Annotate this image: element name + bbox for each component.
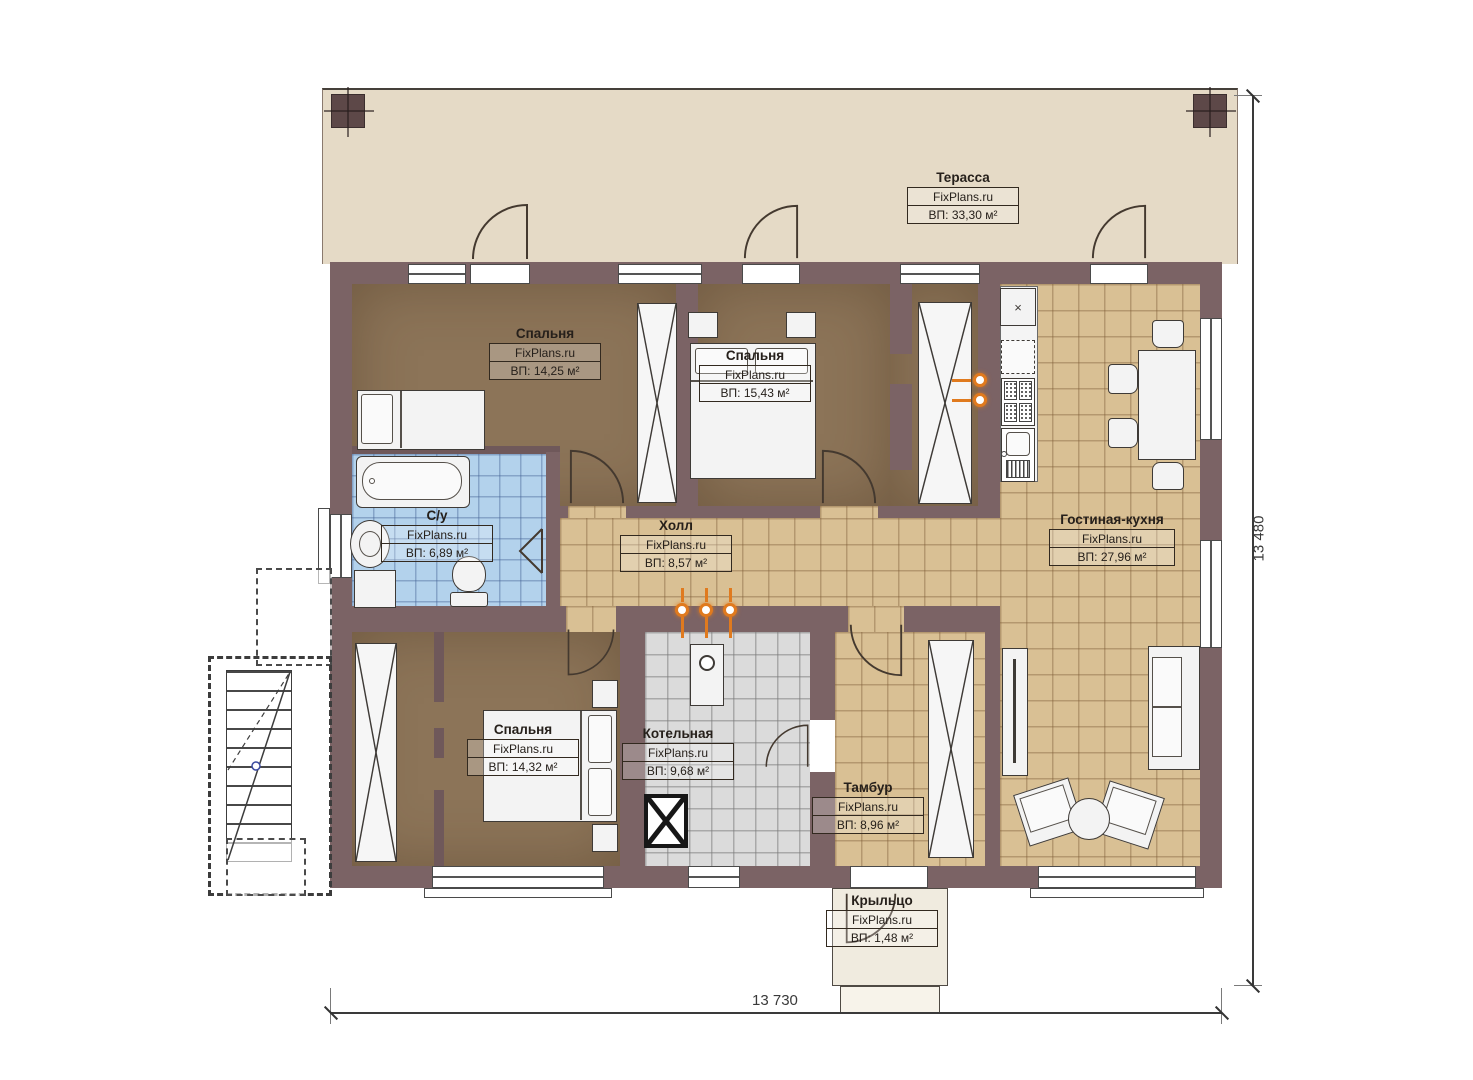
pillar [331,94,365,128]
watermark: FixPlans.ru [813,798,923,816]
entry-opening [850,866,928,888]
area-value: ВП: 33,30 м² [908,206,1018,223]
area-value: ВП: 27,96 м² [1050,548,1174,565]
nightstand-icon [786,312,816,338]
wall [434,728,444,758]
area-value: ВП: 15,43 м² [700,384,810,401]
room-label-terrace: Терасса FixPlans.ru ВП: 33,30 м² [908,170,1018,224]
wall [546,452,560,606]
wall [434,790,444,866]
room-name: Спальня [494,722,552,737]
door-arc [1090,202,1148,262]
gas-valve-icon [952,392,998,408]
door-opening [810,720,835,772]
door-arc [568,448,626,506]
area-value: ВП: 8,96 м² [813,816,923,833]
wall [626,506,820,518]
dimension-line [330,1012,1222,1014]
room-label-living-kitchen: Гостиная-кухня FixPlans.ru ВП: 27,96 м² [1050,512,1174,566]
room-name: Спальня [516,326,574,341]
wall [556,506,568,518]
room-label-boiler: Котельная FixPlans.ru ВП: 9,68 м² [623,726,733,780]
door-arc [470,202,530,262]
gas-valve-icon [952,372,998,388]
room-label-bedroom-3: Спальня FixPlans.ru ВП: 14,32 м² [468,722,578,776]
door-opening [742,264,800,284]
window [618,264,702,284]
door-arc [820,448,878,506]
watermark: FixPlans.ru [468,740,578,758]
door-arc [742,202,800,262]
floor-plan: × [0,0,1473,1080]
watermark: FixPlans.ru [700,366,810,384]
room-name: Холл [659,518,693,533]
porch-step [840,986,940,1014]
room-name: Гостиная-кухня [1060,512,1163,527]
wall [878,506,1000,518]
wall [890,284,912,354]
wardrobe-icon [355,643,397,862]
dimension-line [1234,985,1262,986]
wall [434,632,444,702]
wall [890,384,912,470]
dining-table [1138,350,1196,460]
gas-valve-icon [674,588,690,638]
window [432,866,604,888]
door-arc [566,624,616,680]
nightstand-icon [688,312,718,338]
area-value: ВП: 9,68 м² [623,762,733,779]
wardrobe-icon [928,640,974,858]
room-label-bathroom: С/у FixPlans.ru ВП: 6,89 м² [382,508,492,562]
window-sill [1030,888,1204,898]
washing-machine-icon [354,570,396,608]
area-value: ВП: 8,57 м² [621,554,731,571]
area-value: ВП: 14,32 м² [468,758,578,775]
nightstand-icon [592,680,618,708]
dimension-line [1221,988,1222,1024]
room-name: Крыльцо [851,893,912,908]
gas-valve-icon [698,588,714,638]
toilet-icon [450,556,488,608]
watermark: FixPlans.ru [490,344,600,362]
area-value: ВП: 1,48 м² [827,929,937,946]
wall [985,632,1000,866]
dimension-line [330,988,331,1024]
window [1038,866,1196,888]
tv-stand-icon [1002,648,1028,776]
chair-icon [1152,320,1184,348]
door-arc [764,720,810,772]
pillar [1193,94,1227,128]
dimension-line [1234,95,1262,96]
room-name: Спальня [726,348,784,363]
room-label-vestibule: Тамбур FixPlans.ru ВП: 8,96 м² [813,780,923,834]
watermark: FixPlans.ru [621,536,731,554]
bathtub-icon [356,456,470,508]
window [1200,540,1222,648]
bed-icon [357,390,485,450]
watermark: FixPlans.ru [623,744,733,762]
watermark: FixPlans.ru [1050,530,1174,548]
room-name: Котельная [643,726,714,741]
coffee-table-icon [1068,798,1110,840]
bathroom-door-icon [512,526,546,576]
kitchen-sink-icon [1001,428,1035,482]
window-sill [424,888,612,898]
dimension-label-right: 13 480 [1250,516,1267,562]
nightstand-icon [592,824,618,852]
chair-icon [1108,418,1138,448]
room-label-bedroom-2: Спальня FixPlans.ru ВП: 15,43 м² [700,348,810,402]
wardrobe-icon [637,303,677,503]
room-name: Тамбур [844,780,893,795]
chair-icon [1152,462,1184,490]
chair-icon [1108,364,1138,394]
external-staircase [200,560,336,900]
appliance-icon: × [1000,288,1036,326]
window [408,264,466,284]
sofa-icon [1148,646,1200,770]
area-value: ВП: 14,25 м² [490,362,600,379]
dimension-label-bottom: 13 730 [752,992,798,1009]
door-arc [848,622,904,678]
watermark: FixPlans.ru [908,188,1018,206]
door-opening [1090,264,1148,284]
stove-icon [1001,378,1035,426]
gas-valve-icon [722,588,738,638]
room-label-porch: Крыльцо FixPlans.ru ВП: 1,48 м² [827,893,937,947]
boiler-equipment-icon [644,794,688,848]
watermark: FixPlans.ru [827,911,937,929]
window [1200,318,1222,440]
window [900,264,980,284]
boiler-icon [690,644,724,706]
door-opening [470,264,530,284]
room-name: Терасса [936,170,990,185]
area-value: ВП: 6,89 м² [382,544,492,561]
room-label-hall: Холл FixPlans.ru ВП: 8,57 м² [621,518,731,572]
room-name: С/у [426,508,447,523]
watermark: FixPlans.ru [382,526,492,544]
window [688,866,740,888]
room-label-bedroom-1: Спальня FixPlans.ru ВП: 14,25 м² [490,326,600,380]
fridge-icon [1001,340,1035,374]
